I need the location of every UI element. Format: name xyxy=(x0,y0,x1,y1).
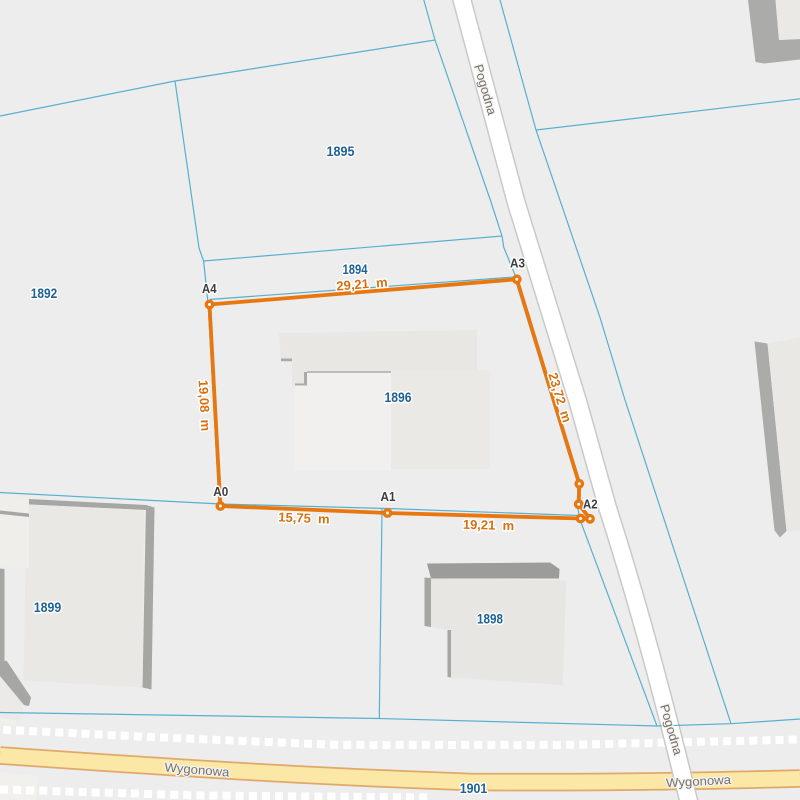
svg-text:A2: A2 xyxy=(583,497,598,512)
svg-text:15,75 m: 15,75 m xyxy=(278,509,330,526)
svg-text:1899: 1899 xyxy=(34,599,62,615)
svg-text:A3: A3 xyxy=(510,256,525,271)
svg-text:1898: 1898 xyxy=(477,611,503,627)
svg-text:A1: A1 xyxy=(381,489,396,504)
svg-text:1894: 1894 xyxy=(343,261,368,277)
svg-text:19,21 m: 19,21 m xyxy=(463,517,515,533)
svg-text:A0: A0 xyxy=(213,484,228,499)
svg-text:1895: 1895 xyxy=(327,143,355,159)
svg-text:1901: 1901 xyxy=(460,780,488,796)
svg-text:19,08 m: 19,08 m xyxy=(196,379,214,431)
svg-text:1892: 1892 xyxy=(31,285,58,301)
svg-text:1896: 1896 xyxy=(385,389,412,405)
svg-text:A4: A4 xyxy=(202,281,217,296)
